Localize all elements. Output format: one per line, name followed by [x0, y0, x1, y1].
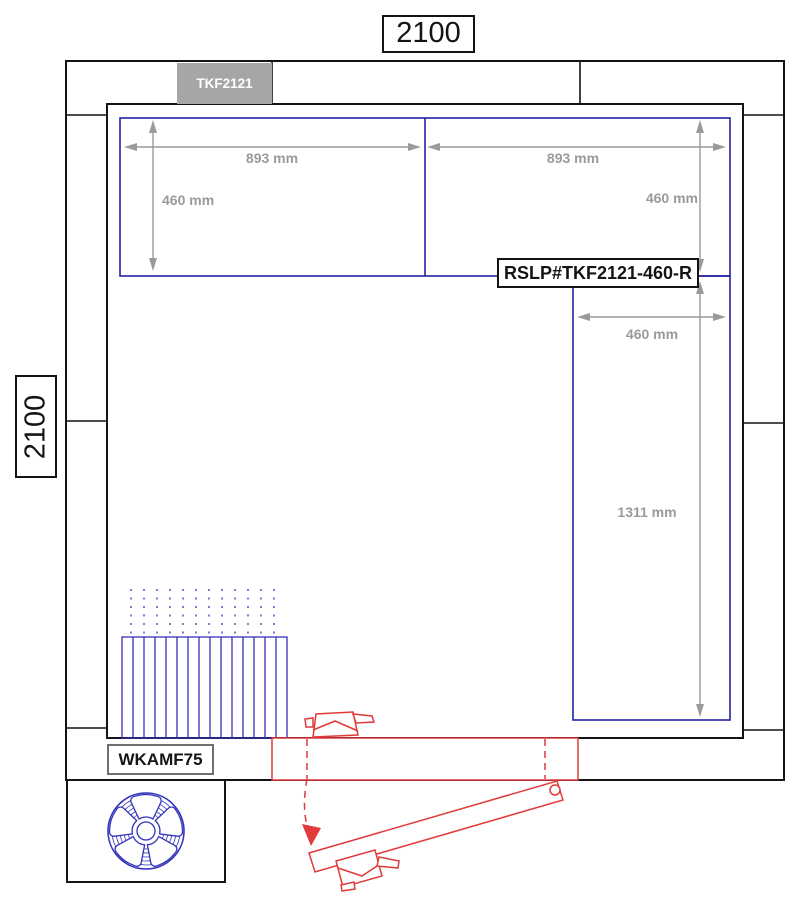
dim-top-right-width: 893 mm	[513, 150, 633, 166]
overall-width-label: 2100	[382, 15, 475, 53]
door-lock-icon	[305, 712, 374, 737]
ceiling-panel-tag: TKF2121	[177, 63, 272, 104]
airflow-dots	[131, 589, 274, 636]
dim-top-right-depth: 460 mm	[578, 190, 698, 206]
evaporator-model-tag: WKAMF75	[107, 744, 214, 775]
overall-height-text: 2100	[20, 394, 53, 459]
right-panel-code-tag: RSLP#TKF2121-460-R	[497, 258, 699, 288]
dim-right-strip-height: 1311 mm	[587, 504, 707, 520]
ceiling-panel-grid	[120, 118, 730, 720]
fan-icon	[107, 793, 186, 869]
door-swing-drawing	[272, 712, 578, 891]
evaporator-unit-drawing	[122, 589, 287, 738]
evaporator-fins	[122, 637, 287, 738]
dim-top-left-depth: 460 mm	[162, 192, 282, 208]
dim-right-strip-width: 460 mm	[592, 326, 712, 342]
dim-top-left-width: 893 mm	[212, 150, 332, 166]
overall-height-label: 2100	[15, 375, 57, 478]
cold-room-floor-plan: 2100 2100 TKF2121 RSLP#TKF2121-460-R WKA…	[0, 0, 805, 902]
